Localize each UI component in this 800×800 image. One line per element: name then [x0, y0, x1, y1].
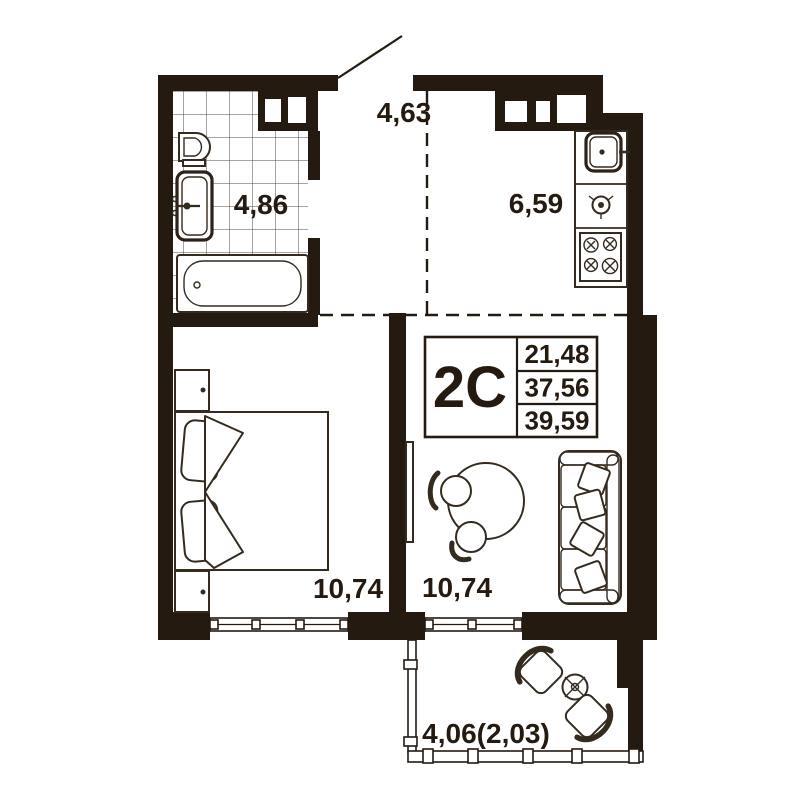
wall-right-kitchen: [627, 113, 643, 315]
unit-type-label: 2C: [433, 355, 507, 420]
toilet: [179, 133, 210, 166]
wall-right-living: [627, 315, 657, 640]
wall-top-left: [158, 75, 338, 91]
balcony-area-label: 4,06(2,03): [422, 718, 550, 749]
wall-bathroom-bottom: [158, 313, 318, 327]
wall-balcony-right-upper: [617, 633, 643, 688]
wall-top-right: [413, 75, 603, 91]
dining-chair-1: [430, 473, 471, 508]
floor-plan-page: 2C 21,48 37,56 39,59 4,63 4,86 6,59 10,7…: [0, 0, 800, 800]
vent-shaft-bathroom: [258, 91, 318, 131]
wall-bathroom-right-upper: [308, 131, 320, 180]
kitchen-area-label: 6,59: [509, 188, 564, 219]
bathtub: [177, 255, 308, 312]
stove: [580, 233, 621, 281]
nightstand-top: [175, 370, 209, 411]
wall-bedroom-living: [389, 313, 406, 640]
hallway-area-label: 4,63: [377, 97, 432, 128]
sofa: [559, 451, 621, 604]
bedroom-area-label: 10,74: [313, 573, 383, 604]
wall-bottom-2: [348, 612, 425, 640]
double-bed: [175, 412, 328, 570]
wall-bathroom-right-lower: [308, 238, 320, 315]
entrance-door-line: [338, 36, 402, 78]
wall-left: [158, 75, 173, 640]
unit-area-value-1: 21,48: [524, 339, 589, 369]
nightstand-bottom: [175, 571, 209, 612]
wall-bottom-1: [158, 612, 210, 640]
bathroom-area-label: 4,86: [234, 189, 289, 220]
bedroom-window: [210, 612, 348, 640]
bathroom-sink: [173, 172, 213, 240]
vent-shaft-kitchen: [495, 91, 603, 131]
floor-plan: 2C 21,48 37,56 39,59 4,63 4,86 6,59 10,7…: [0, 0, 800, 800]
balcony-armchair-1: [510, 641, 569, 700]
unit-area-value-2: 37,56: [524, 373, 589, 403]
living-room-area-label: 10,74: [422, 572, 492, 603]
tv-unit: [406, 442, 413, 542]
unit-info-box: 2C 21,48 37,56 39,59: [425, 337, 597, 437]
unit-area-value-3: 39,59: [524, 406, 589, 436]
wall-balcony-right-lower: [628, 688, 643, 753]
dining-chair-2: [452, 522, 486, 560]
living-room-window: [425, 612, 522, 640]
